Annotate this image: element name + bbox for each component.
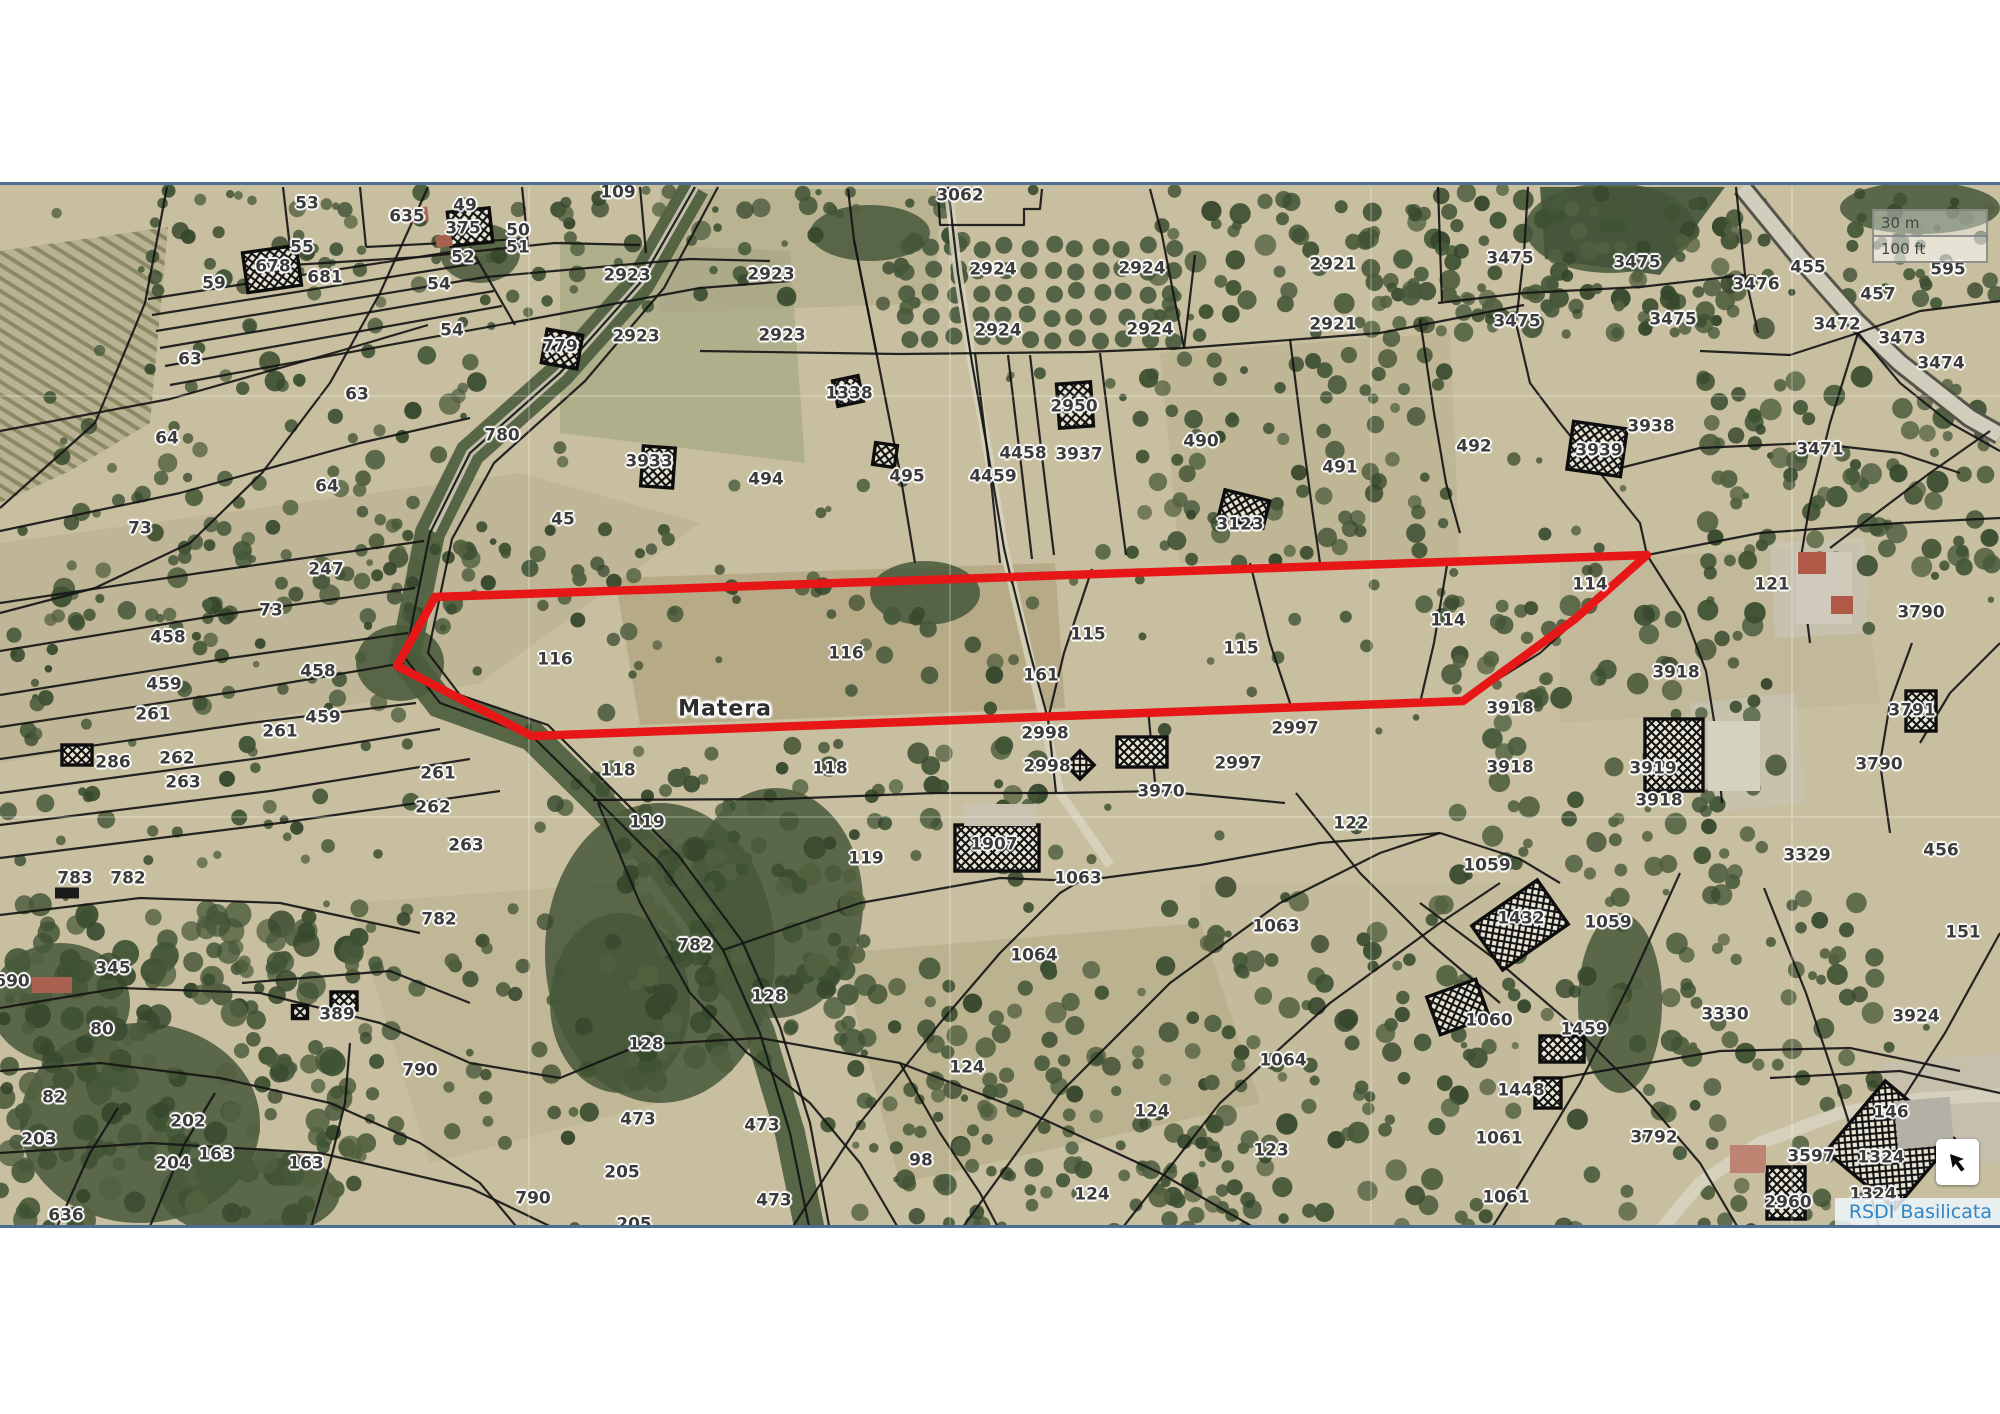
parcel-label: 782 — [110, 871, 146, 888]
parcel-label: 1064 — [1010, 948, 1057, 965]
parcel-label: 783 — [57, 871, 93, 888]
parcel-label: 51 — [506, 240, 530, 257]
parcel-label: 375 — [445, 221, 481, 238]
parcel-label: 3919 — [1629, 761, 1676, 778]
parcel-label: 263 — [448, 838, 484, 855]
parcel-label: 2998 — [1023, 759, 1070, 776]
parcel-label: 261 — [262, 724, 298, 741]
pan-home-button[interactable] — [1936, 1139, 1979, 1185]
parcel-label: 3918 — [1652, 665, 1699, 682]
parcel-label: 119 — [848, 851, 884, 868]
parcel-label: 3475 — [1649, 312, 1696, 329]
parcel-label: 3938 — [1627, 419, 1674, 436]
parcel-label: 2923 — [747, 267, 794, 284]
parcel-label: 3123 — [1216, 517, 1263, 534]
parcel-label: 64 — [155, 431, 179, 448]
parcel-label: 124 — [1074, 1187, 1110, 1204]
parcel-label: 262 — [159, 751, 195, 768]
parcel-label: 2950 — [1050, 399, 1097, 416]
parcel-label: 2997 — [1271, 721, 1318, 738]
parcel-label: 473 — [744, 1118, 780, 1135]
parcel-label: 458 — [150, 630, 186, 647]
parcel-label: 247 — [308, 562, 344, 579]
parcel-label: 782 — [421, 912, 457, 929]
parcel-label: 202 — [170, 1114, 206, 1131]
parcel-label: 690 — [0, 974, 30, 991]
parcel-label: 163 — [288, 1156, 324, 1173]
parcel-label: 3597 — [1787, 1149, 1834, 1166]
parcel-label: 121 — [1754, 577, 1790, 594]
parcel-label: 115 — [1070, 627, 1106, 644]
parcel-label: 80 — [90, 1022, 114, 1039]
parcel-label: 203 — [21, 1132, 57, 1149]
parcel-label: 2924 — [1126, 322, 1173, 339]
parcel-label: 109 — [600, 185, 636, 202]
parcel-label: 64 — [315, 479, 339, 496]
parcel-label: 3939 — [1575, 443, 1622, 460]
parcel-label: 122 — [1333, 816, 1369, 833]
parcel-label: 3790 — [1897, 605, 1944, 622]
parcel-label: 52 — [451, 250, 475, 267]
parcel-label: 3918 — [1486, 760, 1533, 777]
attribution-link[interactable]: RSDI Basilicata — [1835, 1198, 2000, 1228]
parcel-label: 790 — [402, 1063, 438, 1080]
parcel-label: 2997 — [1214, 756, 1261, 773]
parcel-label: 123 — [1253, 1143, 1289, 1160]
parcel-label: 114 — [1572, 577, 1608, 594]
parcel-label: 1059 — [1584, 915, 1631, 932]
parcel-label: 261 — [420, 766, 456, 783]
parcel-label: 635 — [389, 209, 425, 226]
parcel-label: 3790 — [1855, 757, 1902, 774]
parcel-label: 4458 — [999, 446, 1046, 463]
parcel-label: 681 — [307, 270, 343, 287]
parcel-label: 2921 — [1309, 257, 1356, 274]
parcel-label: 3918 — [1635, 793, 1682, 810]
parcel-label: 49 — [453, 198, 477, 215]
parcel-label: 494 — [748, 472, 784, 489]
parcel-label: 389 — [319, 1007, 355, 1024]
parcel-label: 1059 — [1463, 858, 1510, 875]
parcel-label: 678 — [255, 259, 291, 276]
parcel-label: 261 — [135, 707, 171, 724]
parcel-label: 3918 — [1486, 701, 1533, 718]
parcel-label: 3475 — [1486, 251, 1533, 268]
parcel-label: 2921 — [1309, 317, 1356, 334]
parcel-label: 124 — [949, 1060, 985, 1077]
parcel-label: 2924 — [969, 262, 1016, 279]
parcel-label: 55 — [290, 240, 314, 257]
parcel-label: 1907 — [970, 837, 1017, 854]
parcel-label: 3330 — [1701, 1007, 1748, 1024]
parcel-label: 3476 — [1732, 277, 1779, 294]
parcel-label: 116 — [537, 652, 573, 669]
parcel-label: 3970 — [1137, 784, 1184, 801]
parcel-label: 146 — [1873, 1105, 1909, 1122]
scalebar: 30 m 100 ft — [1872, 209, 1988, 263]
parcel-label: 457 — [1860, 287, 1896, 304]
parcel-label: 490 — [1183, 434, 1219, 451]
parcel-label: 128 — [751, 989, 787, 1006]
parcel-label: 2924 — [974, 323, 1021, 340]
parcel-label: 3473 — [1878, 331, 1925, 348]
parcel-label: 82 — [42, 1090, 66, 1107]
parcel-label: 114 — [1430, 613, 1466, 630]
parcel-label: 3471 — [1796, 442, 1843, 459]
parcel-label: 3475 — [1493, 314, 1540, 331]
parcel-label: 205 — [604, 1165, 640, 1182]
parcel-label: 1338 — [825, 386, 872, 403]
parcel-label: 2923 — [612, 329, 659, 346]
arrow-up-left-icon — [1945, 1149, 1971, 1175]
parcel-label: 63 — [178, 352, 202, 369]
parcel-label: 73 — [128, 521, 152, 538]
place-label-matera: Matera — [678, 697, 772, 722]
parcel-label: 636 — [48, 1208, 84, 1225]
parcel-label: 1061 — [1475, 1131, 1522, 1148]
parcel-label: 2923 — [603, 268, 650, 285]
parcel-label: 492 — [1456, 439, 1492, 456]
parcel-label: 54 — [440, 323, 464, 340]
parcel-label: 3924 — [1892, 1009, 1939, 1026]
parcel-label: 118 — [812, 761, 848, 778]
parcel-label: 456 — [1923, 843, 1959, 860]
parcel-label: 54 — [427, 277, 451, 294]
parcel-label: 3937 — [1055, 447, 1102, 464]
parcel-label: 45 — [551, 512, 575, 529]
parcel-label: 790 — [515, 1191, 551, 1208]
map-canvas[interactable]: 1095349635375505155526786815954543062292… — [0, 182, 2000, 1228]
parcel-label: 1060 — [1465, 1013, 1512, 1030]
parcel-label: 1063 — [1252, 919, 1299, 936]
parcel-label: 161 — [1023, 668, 1059, 685]
scalebar-metric: 30 m — [1874, 211, 1986, 235]
parcel-label: 116 — [828, 646, 864, 663]
parcel-label: 53 — [295, 196, 319, 213]
parcel-label: 2960 — [1764, 1195, 1811, 1212]
parcel-label: 98 — [909, 1153, 933, 1170]
parcel-label: 119 — [629, 815, 665, 832]
parcel-label: 1448 — [1497, 1083, 1544, 1100]
map-viewer: 1095349635375505155526786815954543062292… — [0, 0, 2000, 1414]
parcel-label: 459 — [305, 710, 341, 727]
parcel-label: 1432 — [1497, 911, 1544, 928]
parcel-label: 59 — [202, 276, 226, 293]
parcel-label: 3474 — [1917, 356, 1964, 373]
parcel-label: 4459 — [969, 469, 1016, 486]
parcel-label: 495 — [889, 469, 925, 486]
parcel-label: 1063 — [1054, 871, 1101, 888]
parcel-label: 3792 — [1630, 1130, 1677, 1147]
parcel-label: 124 — [1134, 1104, 1170, 1121]
parcel-label: 1061 — [1482, 1190, 1529, 1207]
parcel-label: 163 — [198, 1147, 234, 1164]
parcel-label: 779 — [542, 339, 578, 356]
parcel-label: 205 — [616, 1217, 652, 1229]
parcel-label: 3791 — [1888, 703, 1935, 720]
scalebar-imperial: 100 ft — [1874, 235, 1986, 261]
parcel-label: 1324 — [1857, 1150, 1904, 1167]
parcel-label: 3329 — [1783, 848, 1830, 865]
parcel-label: 345 — [95, 961, 131, 978]
parcel-label: 115 — [1223, 641, 1259, 658]
parcel-label: 2923 — [758, 328, 805, 345]
parcel-label: 63 — [345, 387, 369, 404]
parcel-label: 1064 — [1259, 1053, 1306, 1070]
parcel-label: 473 — [756, 1193, 792, 1210]
parcel-label: 3933 — [625, 454, 672, 471]
parcel-label: 128 — [628, 1037, 664, 1054]
parcel-label: 263 — [165, 775, 201, 792]
parcel-label: 3062 — [936, 188, 983, 205]
parcel-label: 595 — [1930, 262, 1966, 279]
parcel-label: 3475 — [1613, 255, 1660, 272]
parcel-label: 286 — [95, 755, 131, 772]
parcel-label: 118 — [600, 763, 636, 780]
parcel-label: 459 — [146, 677, 182, 694]
parcel-label: 473 — [620, 1112, 656, 1129]
parcel-label: 2924 — [1118, 261, 1165, 278]
parcel-label: 455 — [1790, 260, 1826, 277]
parcel-label: 262 — [415, 800, 451, 817]
parcel-label: 458 — [300, 664, 336, 681]
parcel-label: 204 — [155, 1156, 191, 1173]
parcel-label: 2998 — [1021, 726, 1068, 743]
parcel-label: 491 — [1322, 460, 1358, 477]
parcel-label: 780 — [484, 428, 520, 445]
parcel-label: 782 — [677, 938, 713, 955]
parcel-label: 151 — [1945, 925, 1981, 942]
parcel-label: 73 — [259, 603, 283, 620]
parcel-label: 3472 — [1813, 317, 1860, 334]
parcel-label: 1459 — [1560, 1022, 1607, 1039]
